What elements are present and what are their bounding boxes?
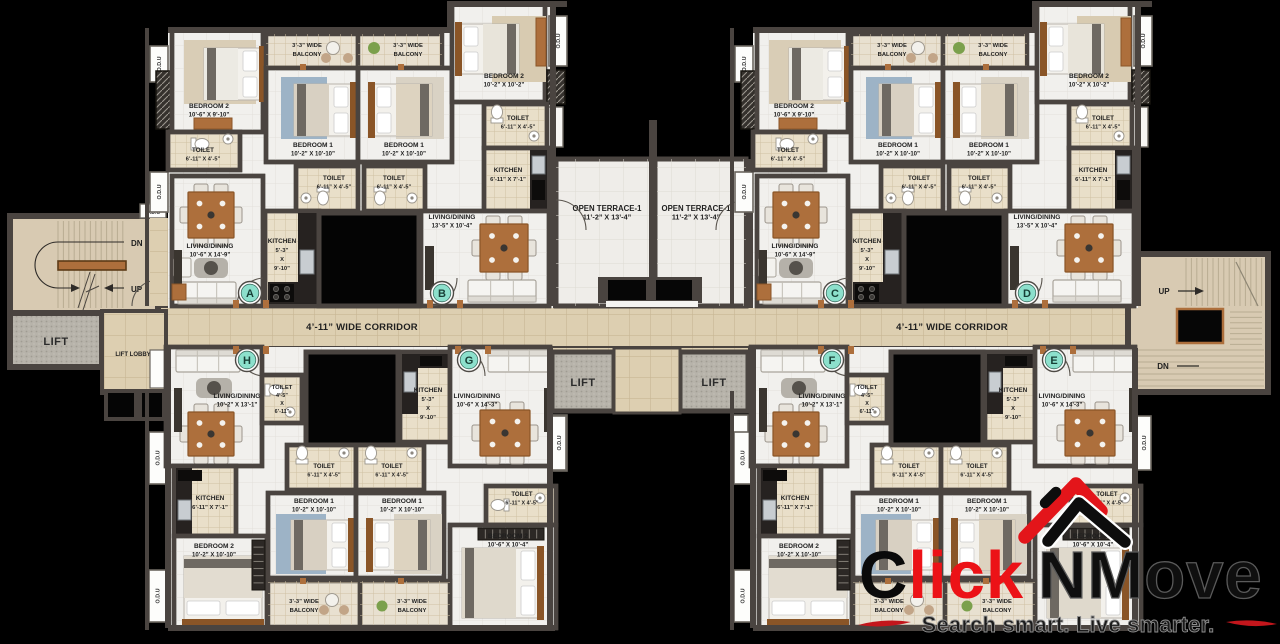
svg-text:DN: DN xyxy=(131,239,143,248)
svg-text:BEDROOM 2: BEDROOM 2 xyxy=(194,543,234,550)
svg-text:O.D.U: O.D.U xyxy=(156,450,162,465)
svg-text:LIFT LOBBY: LIFT LOBBY xyxy=(115,352,150,358)
svg-text:BEDROOM 1: BEDROOM 1 xyxy=(384,142,424,149)
svg-text:10’-6” X 14’-3”: 10’-6” X 14’-3” xyxy=(457,403,498,409)
svg-text:BEDROOM 1: BEDROOM 1 xyxy=(293,142,333,149)
svg-text:UP: UP xyxy=(1158,287,1170,296)
svg-text:10’-2” X 10’-10”: 10’-2” X 10’-10” xyxy=(192,553,236,559)
svg-text:6’-11” X 7’-1”: 6’-11” X 7’-1” xyxy=(490,177,526,183)
svg-text:10’-6” X 10’-4”: 10’-6” X 10’-4” xyxy=(488,543,529,549)
svg-text:BALCONY: BALCONY xyxy=(394,52,423,58)
svg-text:10’-6” X 9’-10”: 10’-6” X 9’-10” xyxy=(189,113,230,119)
svg-text:11’-2” X 13’-4”: 11’-2” X 13’-4” xyxy=(672,213,721,222)
svg-text:6’-11” X 4’-5”: 6’-11” X 4’-5” xyxy=(375,473,409,479)
svg-text:BEDROOM 2: BEDROOM 2 xyxy=(484,73,524,80)
svg-text:TOILET: TOILET xyxy=(313,464,335,470)
svg-text:6’-11” X 4’-5”: 6’-11” X 4’-5” xyxy=(186,157,221,163)
svg-text:5’-3”: 5’-3” xyxy=(422,397,435,403)
svg-text:4’-11” WIDE CORRIDOR: 4’-11” WIDE CORRIDOR xyxy=(896,322,1008,333)
svg-text:10’-2” X 10’-10”: 10’-2” X 10’-10” xyxy=(291,152,335,158)
svg-text:X: X xyxy=(280,401,284,407)
svg-text:9’-10”: 9’-10” xyxy=(274,266,290,272)
svg-text:6’-11” X 4’-5”: 6’-11” X 4’-5” xyxy=(377,185,412,191)
svg-text:6’-11”: 6’-11” xyxy=(275,409,290,415)
svg-text:6’-11” X 4’-5”: 6’-11” X 4’-5” xyxy=(505,501,539,507)
svg-text:13’-5” X 10’-4”: 13’-5” X 10’-4” xyxy=(432,224,473,230)
svg-text:10’-2” X 10’-10”: 10’-2” X 10’-10” xyxy=(382,152,426,158)
svg-text:3’-3” WIDE: 3’-3” WIDE xyxy=(393,43,423,49)
svg-text:TOILET: TOILET xyxy=(383,175,405,182)
svg-text:LIFT: LIFT xyxy=(570,377,595,389)
svg-text:11’-2” X 13’-4”: 11’-2” X 13’-4” xyxy=(583,213,632,222)
svg-text:Click: Click xyxy=(859,538,1024,613)
svg-text:6’-11” X 4’-5”: 6’-11” X 4’-5” xyxy=(501,125,536,131)
svg-text:KITCHEN: KITCHEN xyxy=(414,387,443,394)
svg-text:9’-10”: 9’-10” xyxy=(420,415,436,421)
svg-text:O.D.U: O.D.U xyxy=(157,184,163,199)
svg-text:KITCHEN: KITCHEN xyxy=(494,167,523,174)
svg-text:6’-11” X 4’-5”: 6’-11” X 4’-5” xyxy=(317,185,352,191)
svg-text:G: G xyxy=(465,355,474,367)
svg-text:6’-11” X 4’-5”: 6’-11” X 4’-5” xyxy=(307,473,341,479)
svg-text:TOILET: TOILET xyxy=(323,175,345,182)
svg-text:BEDROOM 1: BEDROOM 1 xyxy=(382,498,422,505)
svg-text:LIFT: LIFT xyxy=(701,377,726,389)
svg-text:O.D.U: O.D.U xyxy=(156,588,162,603)
svg-text:NMove: NMove xyxy=(1038,538,1263,613)
svg-text:LIVING/DINING: LIVING/DINING xyxy=(454,393,501,400)
svg-text:3’-3” WIDE: 3’-3” WIDE xyxy=(397,599,427,605)
svg-text:BEDROOM 1: BEDROOM 1 xyxy=(294,498,334,505)
svg-text:DN: DN xyxy=(1157,362,1169,371)
svg-text:O.D.U: O.D.U xyxy=(557,435,563,450)
svg-text:BALCONY: BALCONY xyxy=(398,608,427,614)
svg-text:10’-2” X 10’-10”: 10’-2” X 10’-10” xyxy=(380,508,424,514)
svg-text:D: D xyxy=(1023,288,1031,300)
svg-text:6’-11” X 7’-1”: 6’-11” X 7’-1” xyxy=(192,505,228,511)
svg-text:LIVING/DINING: LIVING/DINING xyxy=(214,393,261,400)
svg-text:BALCONY: BALCONY xyxy=(290,608,319,614)
svg-text:O.D.U: O.D.U xyxy=(157,56,163,71)
svg-text:B: B xyxy=(438,288,446,300)
svg-text:3’-3” WIDE: 3’-3” WIDE xyxy=(289,599,319,605)
svg-text:LIVING/DINING: LIVING/DINING xyxy=(429,214,476,221)
svg-text:X: X xyxy=(280,257,284,263)
svg-text:Search smart. Live smarter.: Search smart. Live smarter. xyxy=(922,612,1215,637)
svg-text:LIFT: LIFT xyxy=(43,336,68,348)
svg-text:BEDROOM 2: BEDROOM 2 xyxy=(189,103,229,110)
svg-text:H: H xyxy=(243,355,251,367)
svg-text:3’-3” WIDE: 3’-3” WIDE xyxy=(292,43,322,49)
svg-text:X: X xyxy=(426,406,430,412)
svg-text:4’-11” WIDE CORRIDOR: 4’-11” WIDE CORRIDOR xyxy=(306,322,418,333)
svg-text:10’-2” X 13’-1”: 10’-2” X 13’-1” xyxy=(217,403,258,409)
svg-text:KITCHEN: KITCHEN xyxy=(196,495,225,502)
svg-text:TOILET: TOILET xyxy=(381,464,403,470)
svg-text:10’-2” X 10’-10”: 10’-2” X 10’-10” xyxy=(292,508,336,514)
svg-text:LIVING/DINING: LIVING/DINING xyxy=(187,243,234,250)
svg-text:TOILET: TOILET xyxy=(192,147,214,154)
svg-text:TOILET: TOILET xyxy=(507,115,529,122)
svg-text:BALCONY: BALCONY xyxy=(293,52,322,58)
svg-text:5’-3”: 5’-3” xyxy=(276,248,289,254)
svg-text:BEDROOM 2: BEDROOM 2 xyxy=(488,533,528,540)
svg-text:A: A xyxy=(246,288,254,300)
svg-text:10’-2” X 10’-2”: 10’-2” X 10’-2” xyxy=(484,83,525,89)
svg-text:TOILET: TOILET xyxy=(511,492,533,498)
svg-text:TOILET: TOILET xyxy=(272,385,293,391)
svg-text:C: C xyxy=(831,288,839,300)
svg-text:O.D.U: O.D.U xyxy=(556,33,562,48)
svg-text:4’-5”: 4’-5” xyxy=(276,393,288,399)
svg-text:KITCHEN: KITCHEN xyxy=(268,238,297,245)
svg-text:E: E xyxy=(1050,355,1057,367)
svg-text:F: F xyxy=(829,355,836,367)
svg-text:10’-6” X 14’-9”: 10’-6” X 14’-9” xyxy=(190,253,231,259)
